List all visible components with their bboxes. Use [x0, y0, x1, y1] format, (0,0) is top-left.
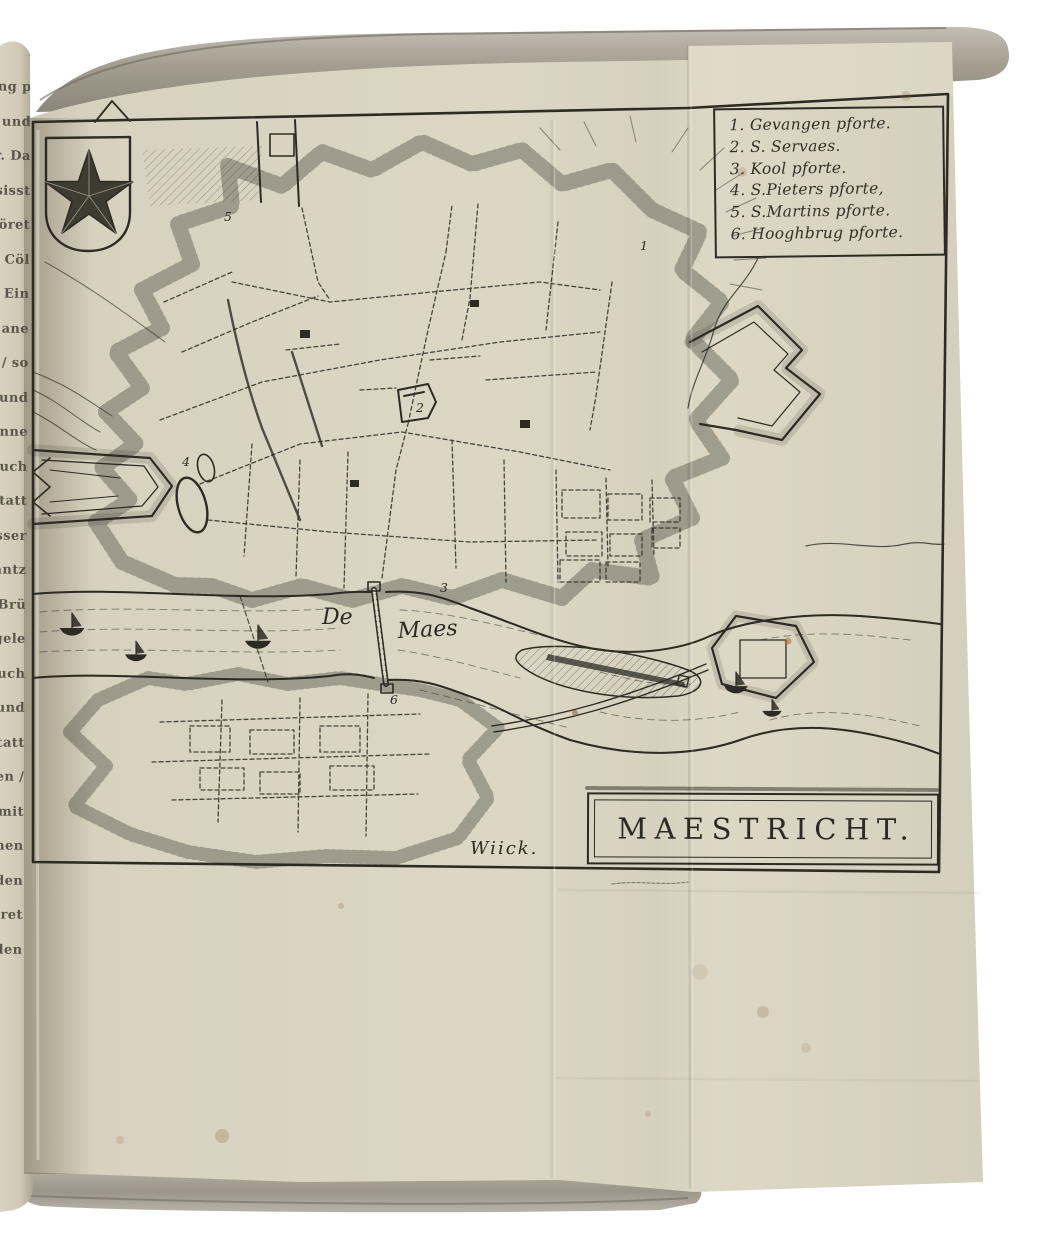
legend-item: 6. Hooghbrug pforte.	[731, 222, 942, 246]
district-label-wiick: Wiick.	[470, 838, 538, 859]
blackletter-fragments: chung p rechen: und st Geur. Da van Ersi…	[0, 70, 30, 968]
title-cartouche-inner: MAESTRICHT.	[594, 799, 932, 858]
map-title: MAESTRICHT.	[610, 811, 917, 846]
map-marker: 6	[390, 692, 398, 707]
legend-item: 3. Kool pforte.	[730, 156, 941, 180]
map-marker: 5	[224, 209, 232, 224]
river-label-maes: Maes	[396, 616, 458, 644]
legend-item: 1. Gevangen pforte.	[729, 113, 940, 137]
title-cartouche: MAESTRICHT.	[587, 792, 939, 865]
legend-item: 2. S. Servaes.	[729, 134, 940, 158]
facing-page-text-fragments: chung p rechen: und st Geur. Da van Ersi…	[0, 70, 30, 1080]
map-legend-box: 1. Gevangen pforte. 2. S. Servaes. 3. Ko…	[713, 106, 946, 259]
legend-item: 4. S.Pieters pforte,	[730, 178, 941, 202]
map-marker: 1	[640, 238, 648, 253]
legend-item: 5. S.Martins pforte.	[730, 200, 941, 224]
map-marker: 4	[181, 454, 190, 469]
book-photo-scene: De Maes Wiick. 1 2 3 4 5 6 chung	[0, 0, 1056, 1260]
map-marker: 3	[440, 580, 448, 595]
map-marker: 2	[415, 400, 424, 415]
river-label-de: De	[321, 605, 353, 630]
